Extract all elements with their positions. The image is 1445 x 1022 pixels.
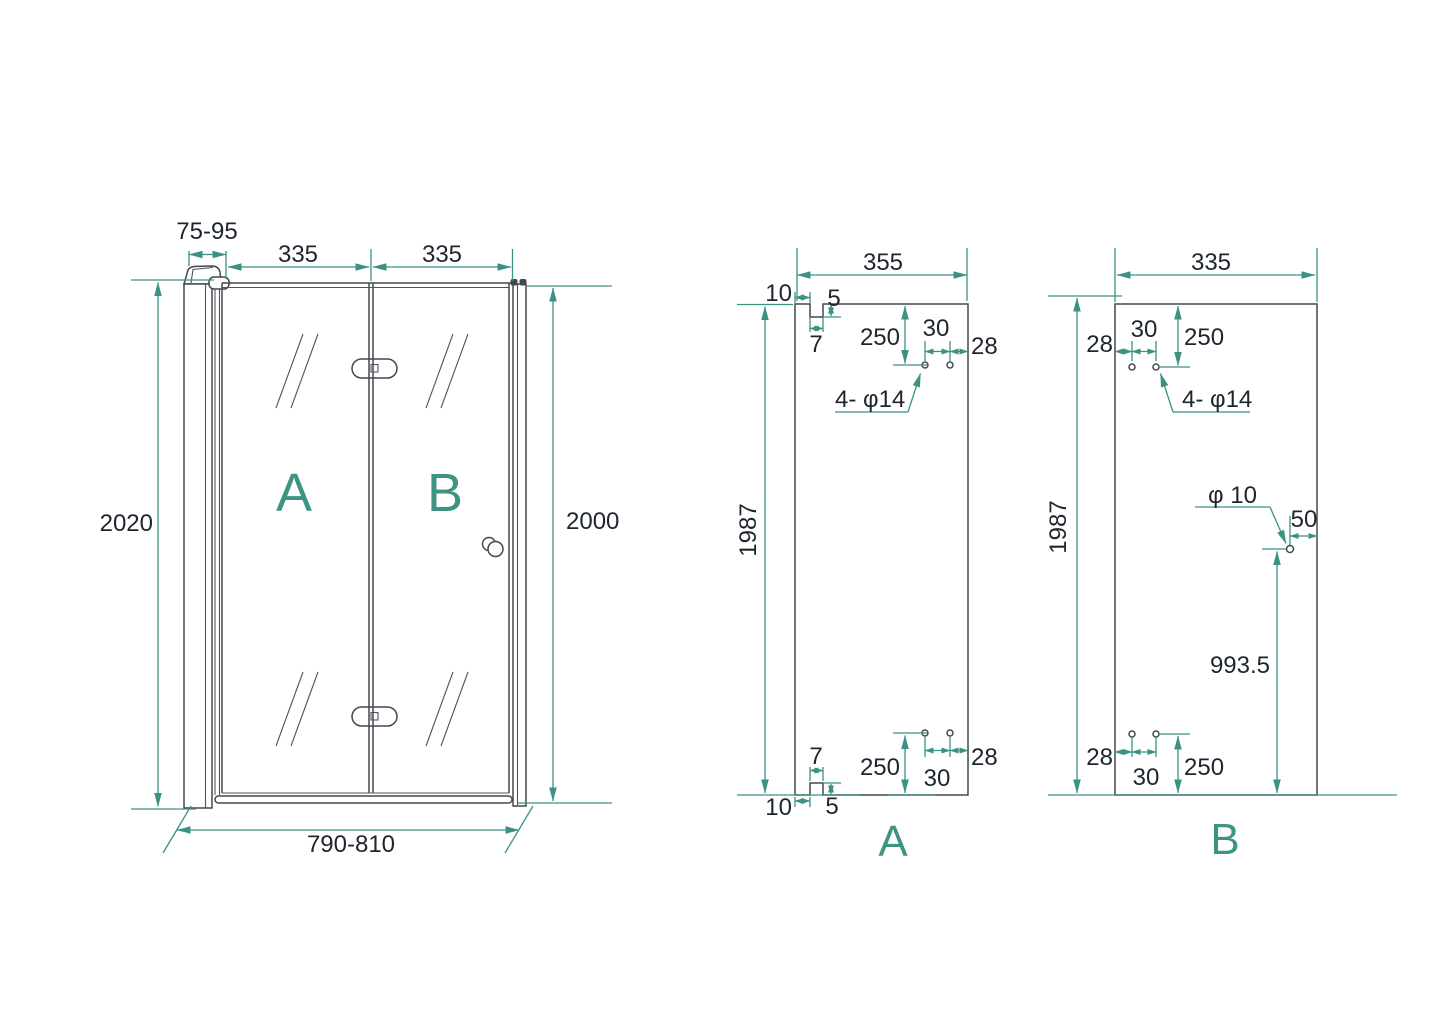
dim-a-bottom-hole-edge: 28	[971, 744, 998, 771]
hinge-latch-top	[371, 365, 378, 373]
glass-reflection	[426, 672, 468, 746]
dim-a-top-hole-gap: 30	[923, 315, 950, 342]
dim-door-height: 2000	[566, 508, 619, 535]
knob-hole	[1287, 546, 1294, 553]
panel-a-view: 355 1987 10 5 7 250 30 28 4- φ14 250 30 …	[735, 248, 998, 866]
leader-knob-hole	[1270, 507, 1286, 544]
dim-b-bottom-hole-gap: 30	[1133, 764, 1160, 791]
panel-b-view: 335 1987 28 30 250 4- φ14 φ 10 50 993.5 …	[1045, 248, 1397, 864]
dim-a-top-depth: 5	[827, 285, 840, 312]
panel-b-label: B	[1210, 815, 1239, 864]
dim-b-knob-hole-dia: φ 10	[1208, 482, 1257, 509]
front-panel-b-letter: B	[427, 463, 463, 523]
dim-a-top-inset: 10	[765, 280, 792, 307]
dim-b-height: 1987	[1045, 500, 1072, 553]
dim-a-bottom-hole-v: 250	[860, 754, 900, 781]
dim-a-top-hole-v: 250	[860, 324, 900, 351]
hinge-latch-bottom	[371, 713, 378, 721]
front-panel-a-letter: A	[276, 463, 312, 523]
dim-b-top-hole-v: 250	[1184, 324, 1224, 351]
panel-a-outline	[795, 304, 968, 795]
dim-total-height: 2020	[100, 510, 153, 537]
front-view: 75-95 335 335 2020 2000 790-810 A B	[100, 218, 620, 858]
bottom-rail	[215, 796, 512, 803]
dim-b-width: 335	[1191, 249, 1231, 276]
dim-front-panel-a-width: 335	[278, 241, 318, 268]
right-profile-cap	[511, 279, 518, 286]
dim-a-hole-note: 4- φ14	[835, 386, 905, 413]
dim-a-bottom-notch: 7	[809, 743, 822, 770]
dim-a-bottom-hole-gap: 30	[924, 765, 951, 792]
leader-hole-note	[1161, 374, 1174, 413]
dim-b-knob-edge-offset: 50	[1291, 506, 1318, 533]
dim-b-top-hole-gap: 30	[1131, 316, 1158, 343]
hinge-hole	[947, 362, 953, 368]
leader-hole-note	[908, 374, 921, 413]
dim-a-height: 1987	[735, 503, 762, 556]
hinge-hole	[1129, 364, 1135, 370]
hinge-capsule-bottom	[352, 707, 397, 726]
dim-front-panel-b-width: 335	[422, 241, 462, 268]
dim-total-width: 790-810	[307, 831, 395, 858]
dim-b-knob-height-offset: 993.5	[1210, 652, 1270, 679]
dim-a-top-hole-edge: 28	[971, 333, 998, 360]
right-profile	[513, 284, 526, 806]
dim-b-top-hole-edge: 28	[1086, 331, 1113, 358]
dim-b-hole-note: 4- φ14	[1182, 386, 1252, 413]
dim-a-width: 355	[863, 249, 903, 276]
glass-reflection	[276, 334, 318, 408]
dim-wall-clearance: 75-95	[176, 218, 237, 245]
drawing-page: 75-95 335 335 2020 2000 790-810 A B	[0, 0, 1445, 1022]
dim-a-top-notch: 7	[809, 331, 822, 358]
hinge-hole	[947, 730, 953, 736]
wall-profile	[184, 284, 212, 808]
right-profile-cap	[520, 279, 527, 286]
panel-a-label: A	[878, 817, 908, 866]
door-knob-icon	[488, 542, 503, 557]
dim-a-bottom-depth: 5	[825, 793, 838, 820]
glass-reflection	[276, 672, 318, 746]
dim-b-bottom-hole-v: 250	[1184, 754, 1224, 781]
technical-drawing: 75-95 335 335 2020 2000 790-810 A B	[0, 0, 1445, 1022]
glass-reflection	[426, 334, 468, 408]
dim-a-bottom-inset: 10	[765, 794, 792, 821]
front-door-geometry	[184, 266, 527, 808]
hinge-capsule-top	[352, 359, 397, 378]
dim-b-bottom-hole-edge: 28	[1086, 744, 1113, 771]
